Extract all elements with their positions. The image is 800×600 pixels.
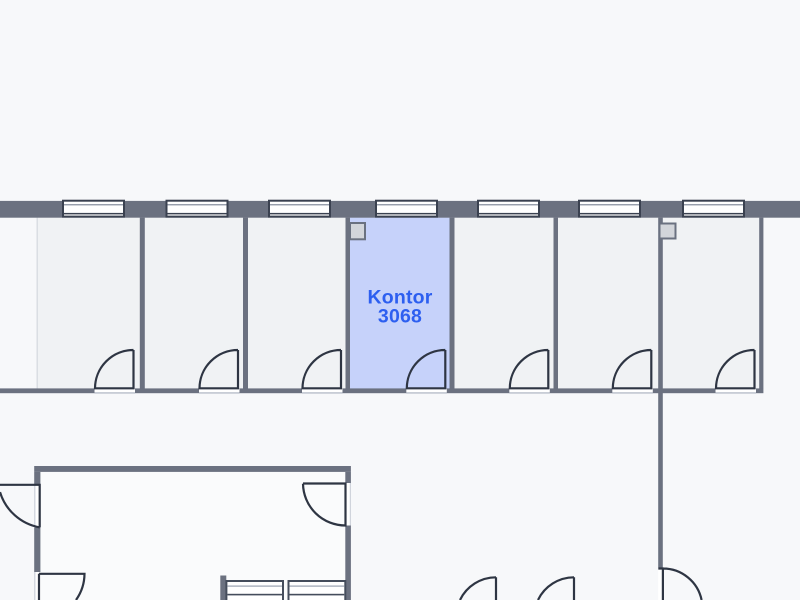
- svg-text:3068: 3068: [378, 306, 422, 328]
